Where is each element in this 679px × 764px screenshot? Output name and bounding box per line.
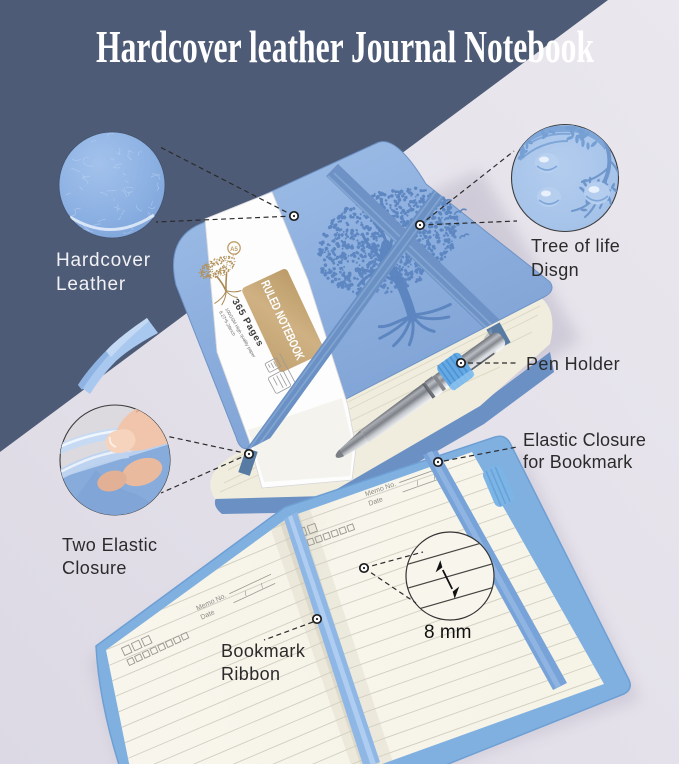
svg-text:Two Elastic: Two Elastic <box>62 535 157 555</box>
svg-text:for Bookmark: for Bookmark <box>523 452 633 472</box>
svg-text:Ribbon: Ribbon <box>221 664 280 684</box>
svg-text:8 mm: 8 mm <box>424 622 472 643</box>
svg-text:Pen Holder: Pen Holder <box>526 354 620 374</box>
svg-text:A5: A5 <box>230 247 238 253</box>
svg-text:Elastic Closure: Elastic Closure <box>523 430 646 450</box>
svg-text:Tree of life: Tree of life <box>531 236 620 256</box>
svg-text:Closure: Closure <box>62 558 127 578</box>
svg-text:Leather: Leather <box>56 274 126 295</box>
svg-text:Hardcover: Hardcover <box>56 250 151 271</box>
svg-text:Bookmark: Bookmark <box>221 641 306 661</box>
svg-text:Disgn: Disgn <box>531 260 579 280</box>
svg-text:Hardcover leather Journal Note: Hardcover leather Journal Notebook <box>96 21 594 72</box>
